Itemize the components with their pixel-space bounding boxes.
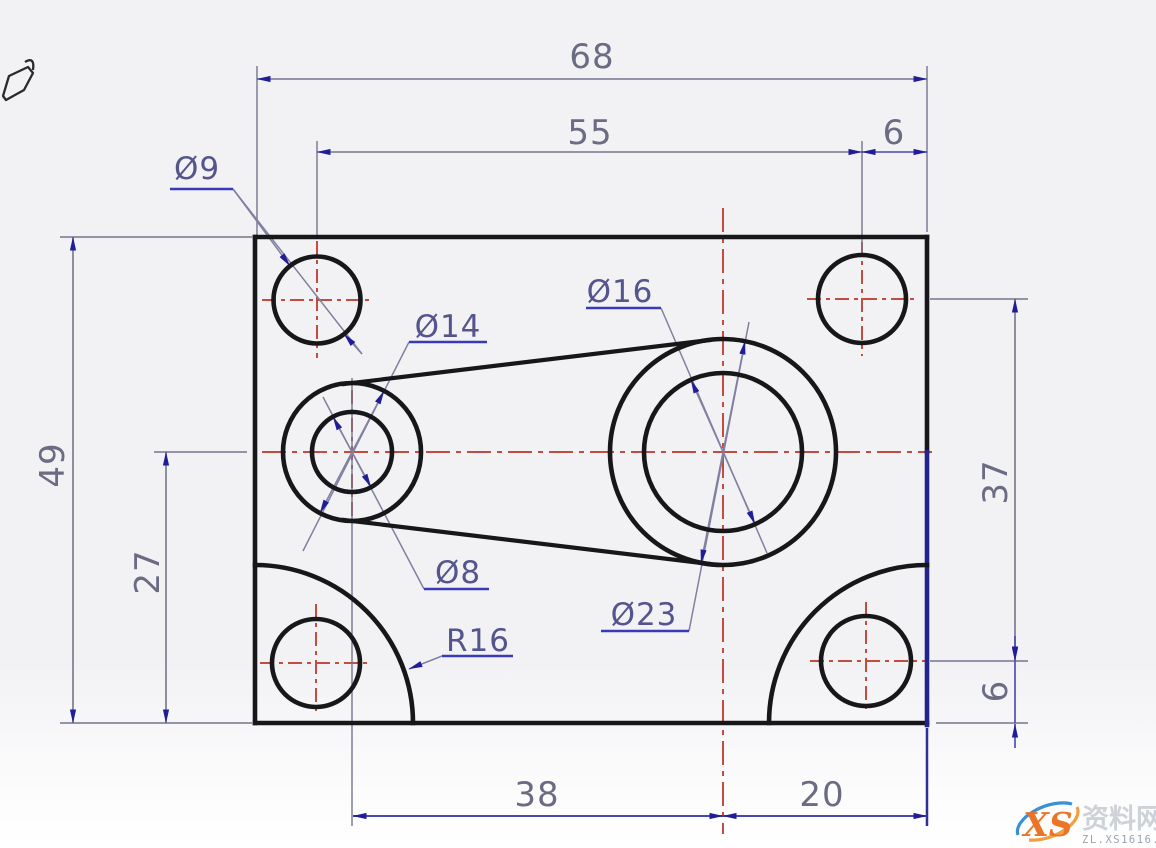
hand-cursor-icon (3, 60, 33, 100)
dim-boss-height-label: 27 (128, 549, 168, 594)
xs-swoosh-logo: XS (1017, 803, 1078, 844)
leader-r16 (409, 656, 442, 669)
dim-right-span-label: 20 (799, 775, 844, 815)
callout-left-boss-bore-label: Ø8 (435, 555, 481, 591)
dim-total-width-label: 68 (569, 37, 614, 77)
watermark-site-url: ZL.XS1616.COM (1082, 834, 1156, 846)
watermark-logo-text: XS (1021, 805, 1072, 844)
callout-left-boss-outer-label: Ø14 (415, 309, 482, 345)
top-right-hole-centermark (807, 242, 917, 356)
callout-underlines (170, 189, 689, 656)
dim-total-height-label: 49 (33, 442, 73, 487)
dim-right-hole-span-label: 37 (976, 459, 1016, 504)
cad-canvas: 68 55 6 49 27 37 6 38 20 Ø9 Ø14 Ø16 Ø8 Ø… (0, 0, 1156, 848)
dim-top-right-offset-label: 6 (883, 113, 906, 153)
callout-center-boss-outer-label: Ø23 (611, 597, 678, 633)
drawing-svg: 68 55 6 49 27 37 6 38 20 Ø9 Ø14 Ø16 Ø8 Ø… (0, 0, 1156, 848)
plate-outline (255, 237, 927, 725)
leader-lines (233, 189, 767, 669)
dim-hole-span-label: 55 (567, 113, 612, 153)
callout-center-boss-bore-label: Ø16 (587, 274, 654, 310)
leader-d9 (233, 189, 362, 354)
dim-bottom-right-offset-label: 6 (976, 680, 1016, 703)
dim-boss-span-label: 38 (514, 775, 559, 815)
bottom-right-fillet-arc (769, 565, 927, 723)
callout-corner-hole-label: Ø9 (174, 151, 220, 187)
watermark-site-name: 资料网 (1082, 804, 1156, 835)
callout-corner-fillet-label: R16 (446, 623, 510, 659)
callout-labels: Ø9 Ø14 Ø16 Ø8 Ø23 R16 (174, 151, 677, 659)
watermark: XS 资料网 ZL.XS1616.COM (1017, 803, 1156, 846)
